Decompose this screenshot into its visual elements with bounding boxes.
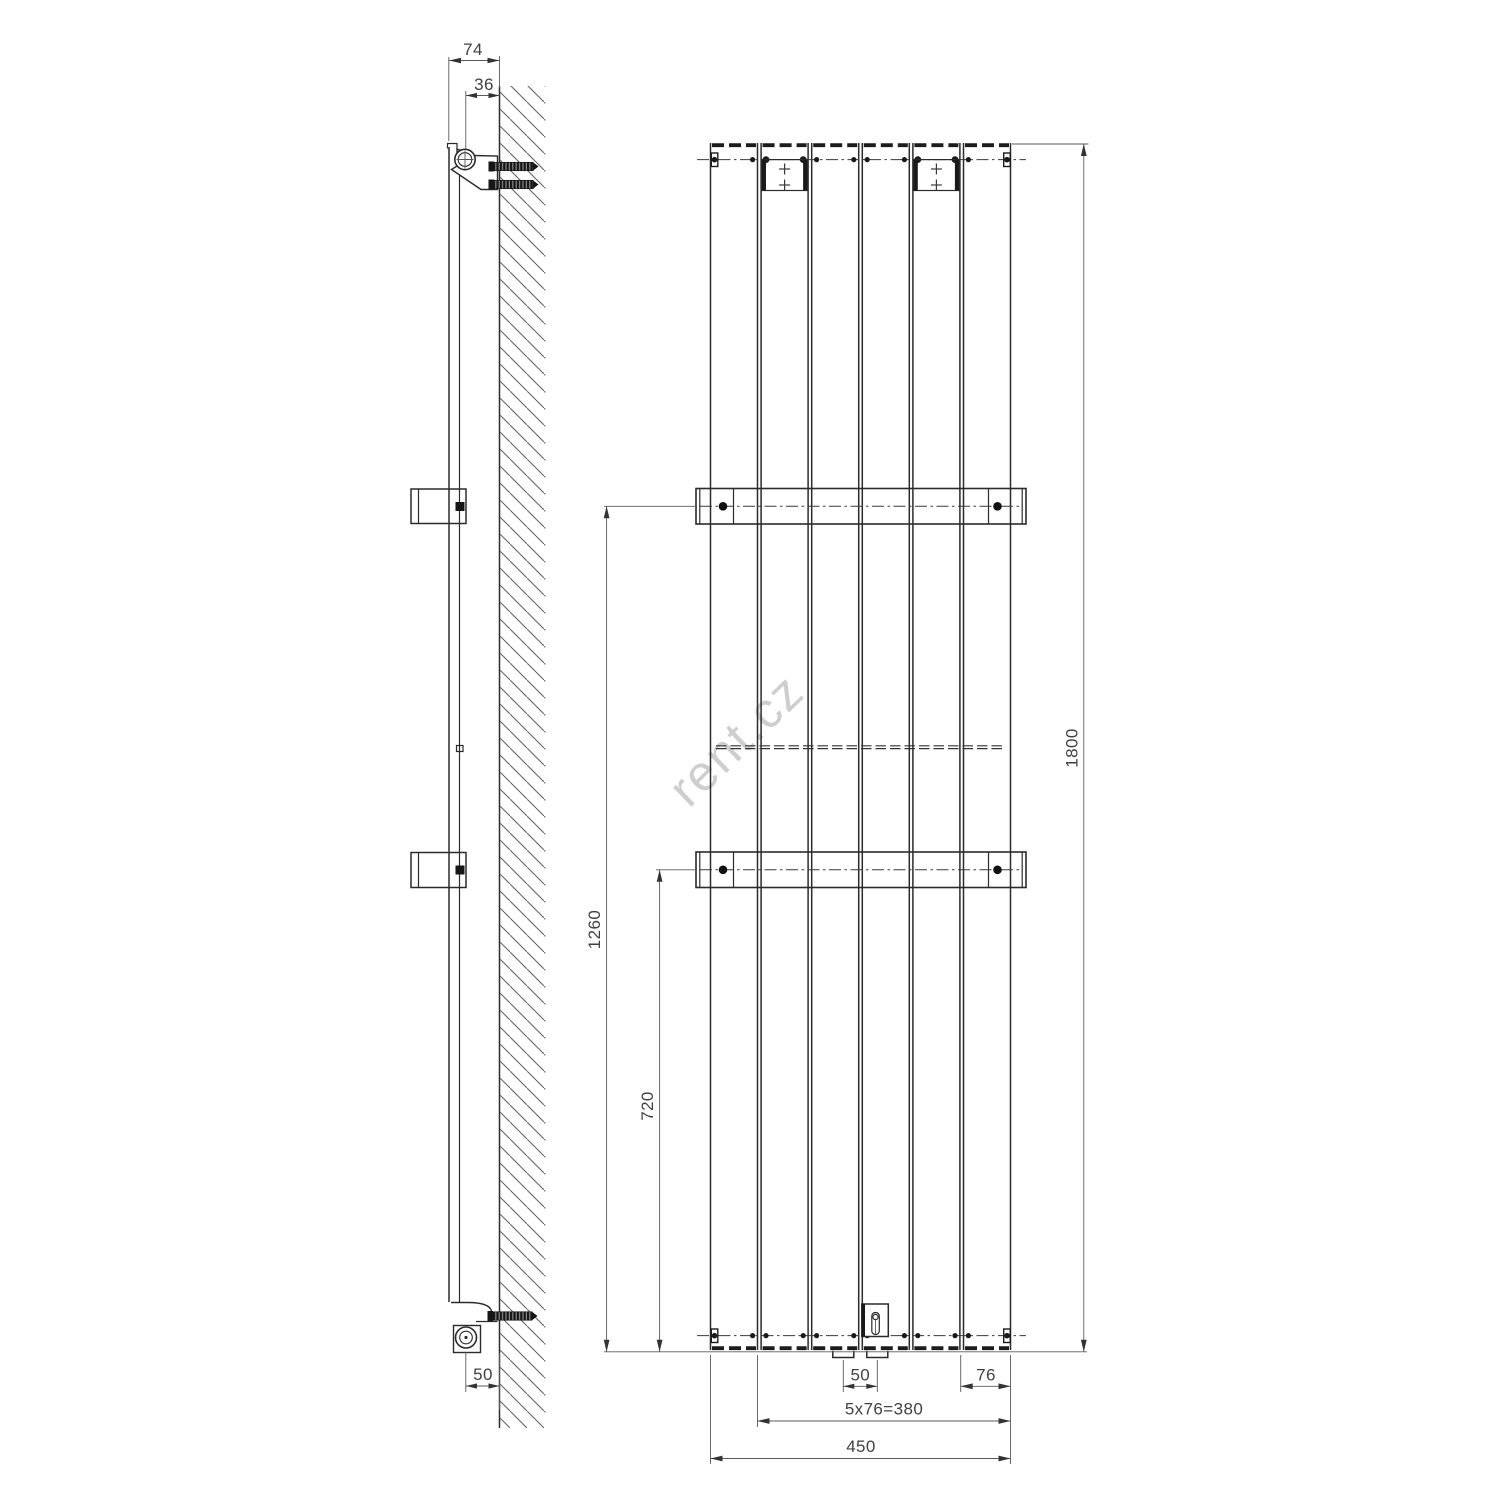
bottom-bracket-arm	[451, 1303, 492, 1312]
side-view: 74 36 50	[411, 40, 545, 1428]
dim-50-front: 50	[843, 1366, 877, 1389]
anchor-screw-top-1	[489, 162, 539, 172]
watermark-text: rent.cz	[658, 663, 815, 817]
dim-label-height-1800: 1800	[1063, 728, 1082, 767]
valve-fitting	[862, 1304, 889, 1337]
anchor-screw-top-2	[489, 180, 539, 190]
dim-label-pitch-formula: 5x76=380	[845, 1400, 923, 1419]
dim-label-connections-50: 50	[850, 1366, 870, 1385]
dim-1800: 1800	[1063, 144, 1087, 1352]
plus-marks-left	[779, 164, 790, 191]
radiator-drawing: rent.cz	[0, 0, 1500, 1500]
mid-bracket-lower	[411, 853, 466, 888]
dim-label-upper-bracket-1260: 1260	[585, 910, 604, 949]
bracket-bar-upper	[696, 489, 1026, 525]
dim-380: 5x76=380	[758, 1400, 1011, 1424]
dim-label-pitch-76: 76	[976, 1366, 996, 1385]
anchor-screw-bottom	[488, 1311, 538, 1321]
dim-720: 720	[638, 870, 663, 1352]
mid-bracket-upper	[411, 489, 466, 524]
plus-marks-right	[931, 164, 942, 191]
bracket-bar-lower	[696, 852, 1026, 888]
technical-drawing-canvas: rent.cz	[0, 0, 1500, 1500]
dim-450: 450	[711, 1437, 1011, 1461]
dim-label-width-450: 450	[846, 1437, 876, 1456]
dim-76: 76	[961, 1366, 1011, 1390]
dim-label-depth-74: 74	[463, 40, 483, 59]
wall-hatching	[500, 86, 545, 1428]
dim-1260: 1260	[585, 506, 610, 1352]
dim-36: 36	[466, 75, 500, 149]
centerline-dots	[750, 156, 971, 1338]
mounting-box-right	[914, 160, 959, 191]
mounting-box-left	[762, 160, 807, 191]
dim-label-lower-bracket-720: 720	[638, 1091, 657, 1121]
dim-label-offset-36: 36	[474, 75, 494, 94]
dim-50-side: 50	[466, 1352, 500, 1410]
front-view-dimensions: 1800 1260 720 50 76	[585, 144, 1089, 1464]
dim-label-bottom-offset-50: 50	[473, 1365, 493, 1384]
